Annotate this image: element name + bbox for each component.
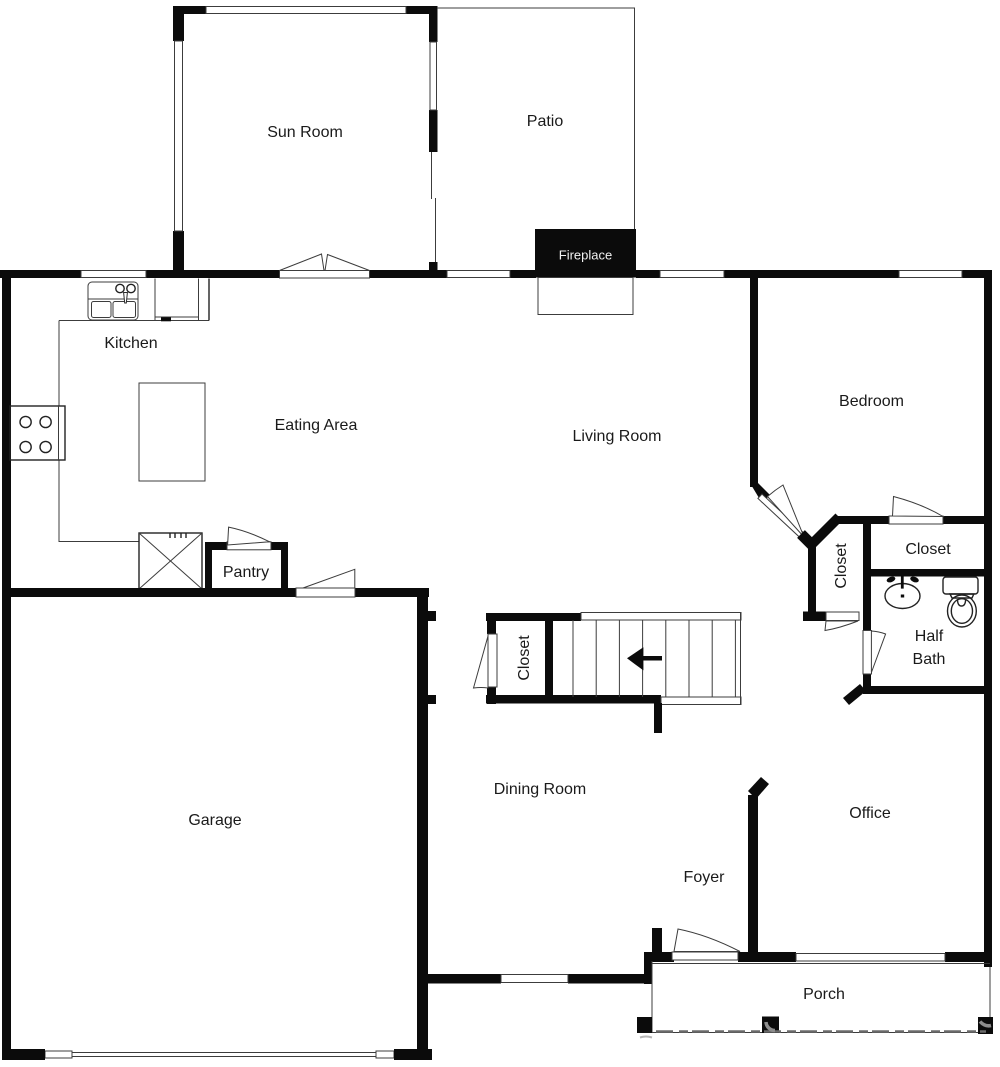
svg-text:Garage: Garage (188, 812, 241, 829)
svg-text:Fireplace: Fireplace (559, 248, 612, 263)
svg-text:Kitchen: Kitchen (104, 335, 157, 352)
svg-text:Living Room: Living Room (573, 428, 662, 445)
svg-text:Closet: Closet (833, 543, 850, 589)
svg-text:Half: Half (915, 628, 944, 645)
svg-text:Office: Office (849, 805, 891, 822)
svg-text:Eating Area: Eating Area (275, 417, 358, 434)
svg-text:Patio: Patio (527, 113, 564, 130)
svg-text:Sun Room: Sun Room (267, 124, 343, 141)
svg-text:Closet: Closet (516, 635, 533, 681)
svg-text:Porch: Porch (803, 986, 845, 1003)
svg-text:Dining Room: Dining Room (494, 781, 586, 798)
svg-text:Closet: Closet (905, 541, 951, 558)
svg-text:Foyer: Foyer (684, 869, 726, 886)
svg-text:Bedroom: Bedroom (839, 393, 904, 410)
svg-text:Pantry: Pantry (223, 564, 269, 581)
svg-text:Bath: Bath (913, 651, 946, 668)
